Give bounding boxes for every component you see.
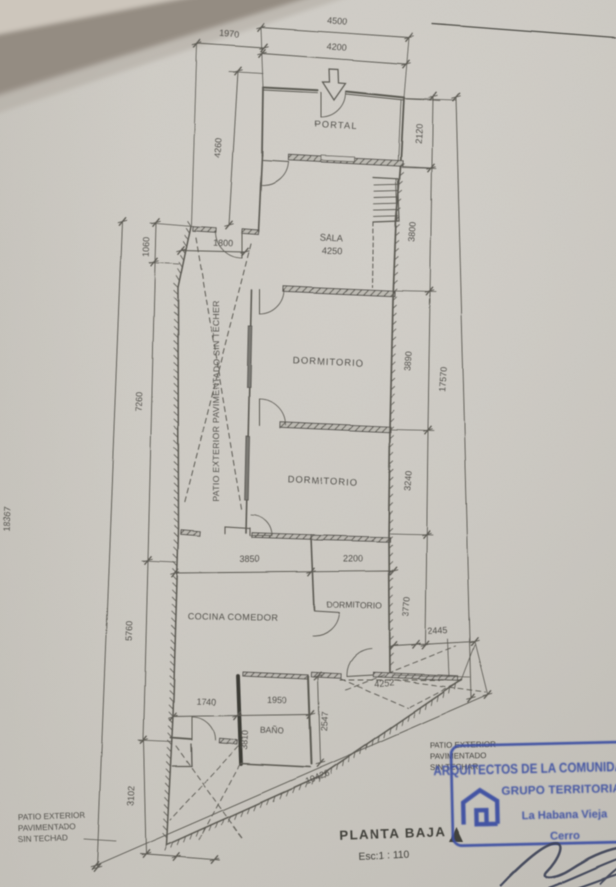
svg-text:4252: 4252 <box>373 677 394 688</box>
svg-text:18367: 18367 <box>2 506 13 531</box>
svg-text:1800: 1800 <box>213 238 233 249</box>
svg-text:3240: 3240 <box>402 470 413 491</box>
svg-text:4200: 4200 <box>326 41 347 52</box>
svg-text:7260: 7260 <box>134 392 145 412</box>
svg-text:BAÑO: BAÑO <box>260 725 285 736</box>
svg-text:SALA: SALA <box>319 233 344 244</box>
svg-text:5760: 5760 <box>124 621 135 641</box>
svg-text:Esc:1 : 110: Esc:1 : 110 <box>358 850 409 863</box>
svg-text:1950: 1950 <box>267 695 287 705</box>
svg-text:2445: 2445 <box>428 625 449 636</box>
svg-text:2200: 2200 <box>343 554 363 564</box>
svg-text:PAVIMENTADO: PAVIMENTADO <box>430 751 487 761</box>
svg-text:PATIO EXTERIOR PAVIMENTADO SIN: PATIO EXTERIOR PAVIMENTADO SIN TECHER <box>211 300 221 501</box>
svg-text:17570: 17570 <box>437 367 449 393</box>
svg-text:2547: 2547 <box>319 711 330 731</box>
svg-text:1970: 1970 <box>219 28 240 39</box>
svg-text:3850: 3850 <box>239 554 259 564</box>
svg-text:3890: 3890 <box>402 350 413 371</box>
svg-text:3770: 3770 <box>400 596 411 617</box>
svg-text:Cerro: Cerro <box>550 830 580 843</box>
svg-text:4260: 4260 <box>212 138 223 159</box>
svg-text:SIN TECHAD: SIN TECHAD <box>18 833 68 844</box>
svg-text:3102: 3102 <box>126 786 137 806</box>
svg-text:COCINA COMEDOR: COCINA COMEDOR <box>188 611 278 623</box>
svg-text:3800: 3800 <box>406 221 417 242</box>
svg-text:1740: 1740 <box>196 697 216 708</box>
svg-text:DORMITORIO: DORMITORIO <box>326 600 382 611</box>
svg-text:4500: 4500 <box>327 15 348 26</box>
svg-text:2120: 2120 <box>413 123 425 144</box>
svg-text:3810: 3810 <box>239 730 250 750</box>
svg-text:La Habana Vieja: La Habana Vieja <box>522 808 609 822</box>
svg-text:GRUPO TERRITORIAL: GRUPO TERRITORIAL <box>501 782 616 798</box>
svg-text:4250: 4250 <box>322 246 343 257</box>
svg-text:1060: 1060 <box>141 237 152 257</box>
